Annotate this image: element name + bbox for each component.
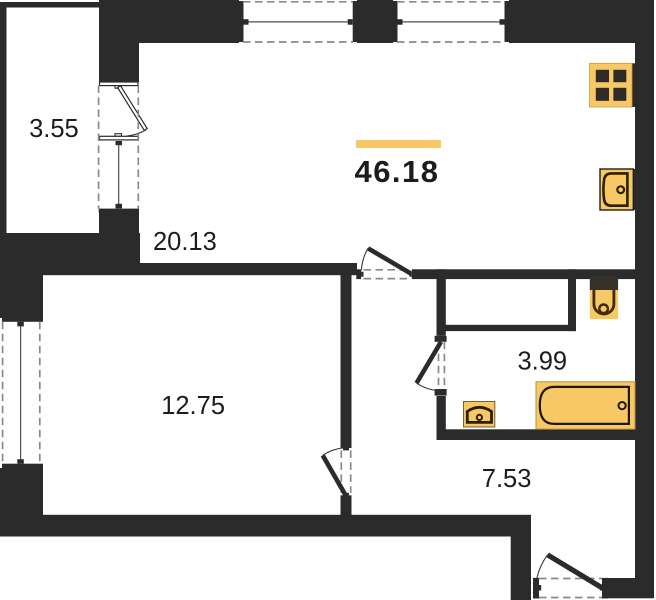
svg-text:7.53: 7.53 xyxy=(482,465,532,493)
svg-text:3.55: 3.55 xyxy=(29,115,79,143)
svg-text:20.13: 20.13 xyxy=(153,228,217,256)
svg-text:12.75: 12.75 xyxy=(161,392,225,420)
svg-text:3.99: 3.99 xyxy=(517,348,567,376)
svg-text:46.18: 46.18 xyxy=(354,154,439,189)
